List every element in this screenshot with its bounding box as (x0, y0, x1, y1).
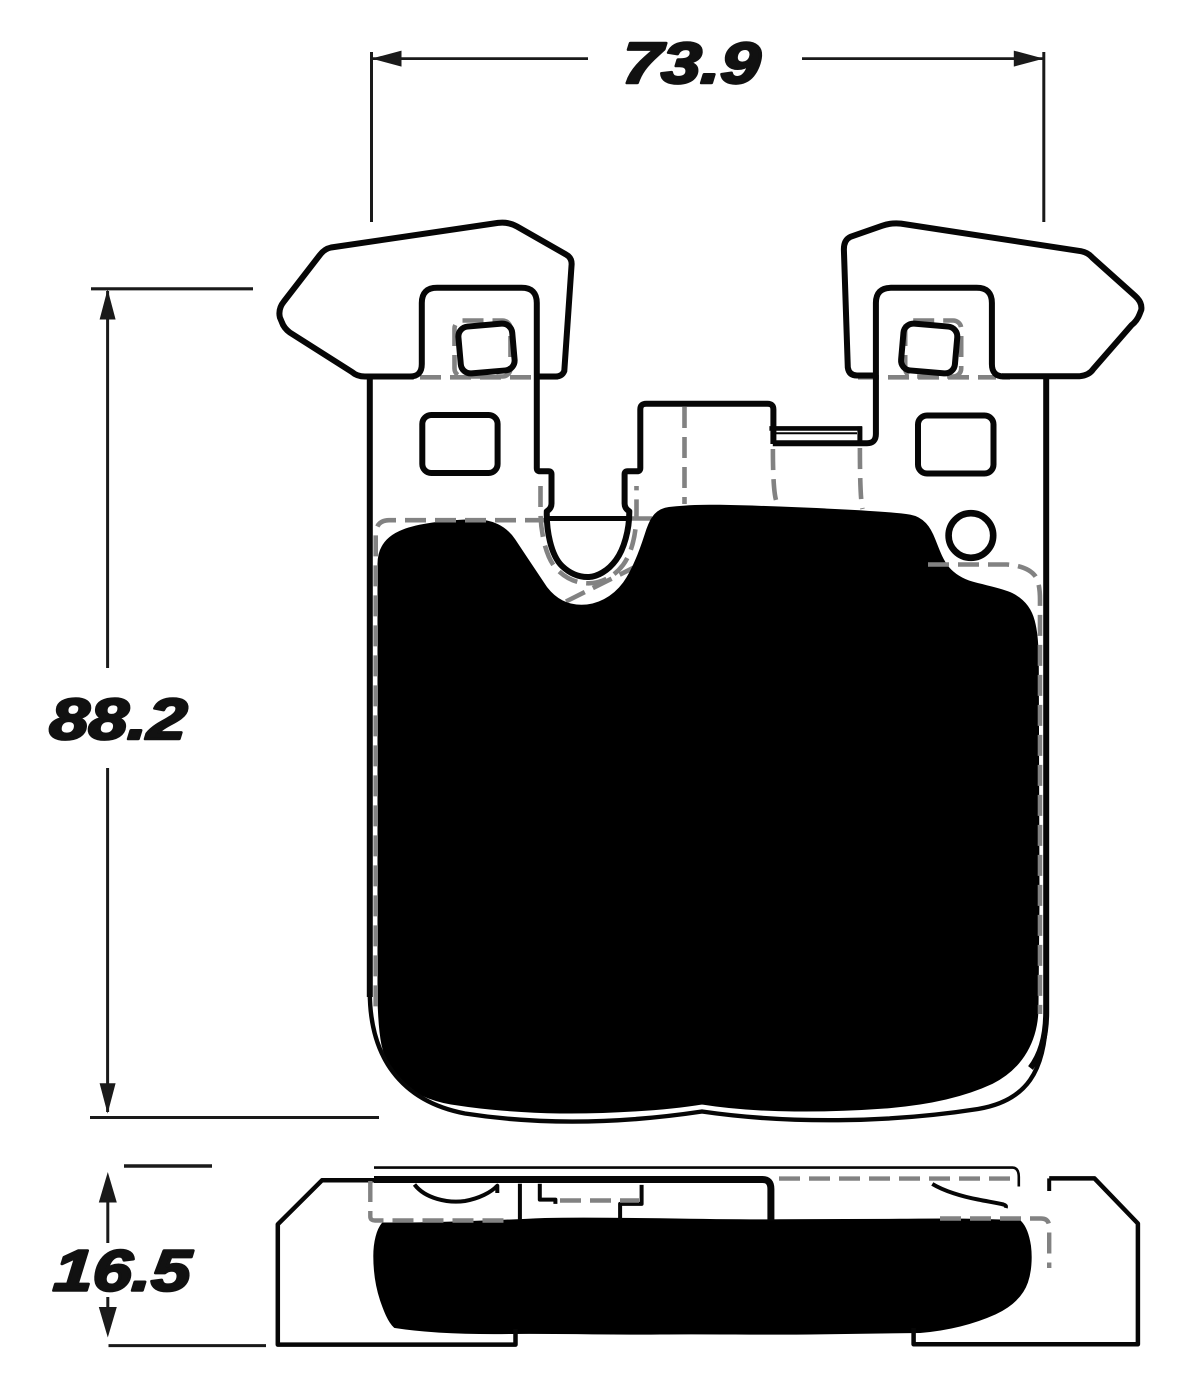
svg-text:73.9: 73.9 (620, 31, 763, 96)
svg-text:16.5: 16.5 (52, 1239, 194, 1304)
svg-text:88.2: 88.2 (48, 687, 190, 752)
